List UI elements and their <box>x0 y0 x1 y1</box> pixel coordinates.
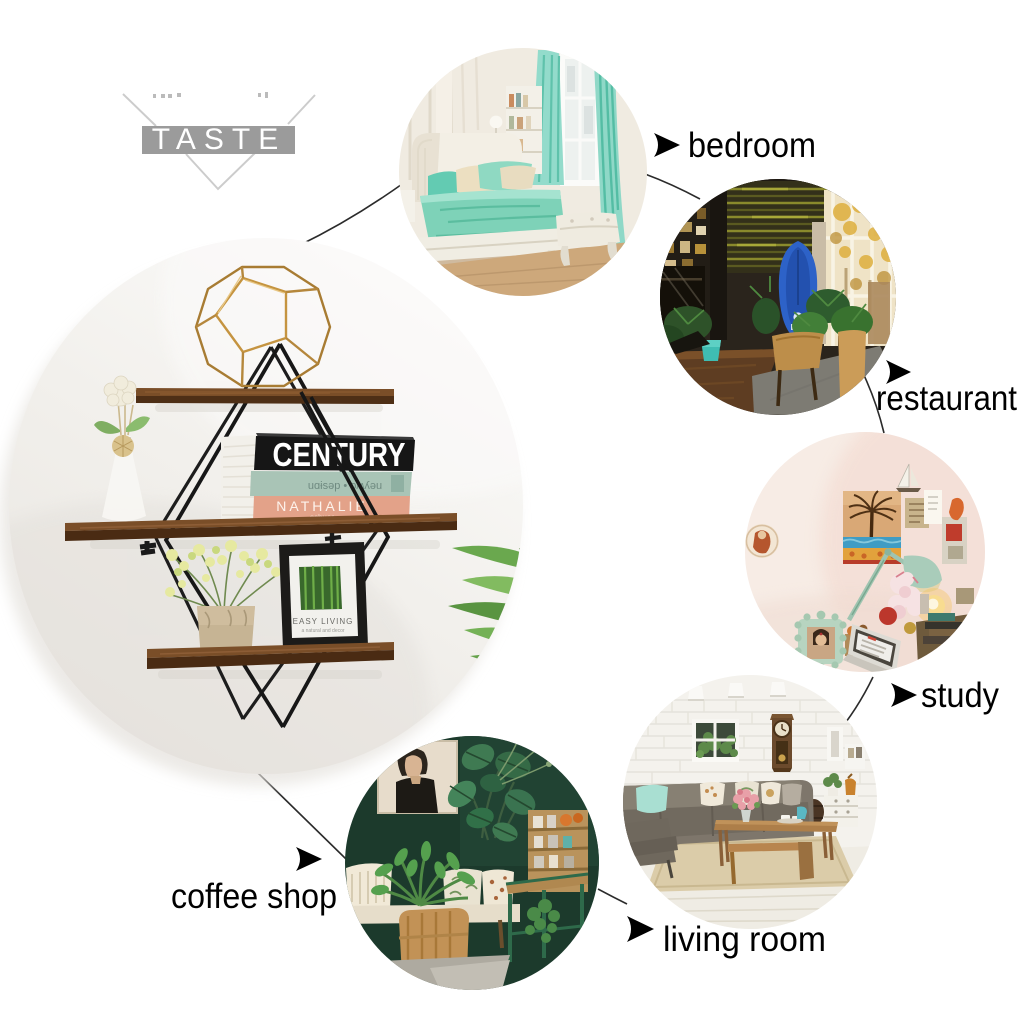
svg-text:a natural and decor: a natural and decor <box>301 628 344 634</box>
svg-text:uɑɨsəp • oʍʎəu: uɑɨsəp • oʍʎəu <box>308 480 382 492</box>
svg-text:living room: living room <box>663 920 826 959</box>
svg-text:restaurant: restaurant <box>876 379 1017 418</box>
svg-text:bedroom: bedroom <box>688 126 816 165</box>
svg-text:CENTURY: CENTURY <box>273 436 406 473</box>
svg-text:coffee shop: coffee shop <box>171 877 337 916</box>
svg-text:NATHALIE: NATHALIE <box>276 498 367 514</box>
svg-text:TASTE: TASTE <box>152 123 286 156</box>
svg-text:EASY LIVING: EASY LIVING <box>293 617 354 626</box>
svg-text:study: study <box>921 676 999 715</box>
